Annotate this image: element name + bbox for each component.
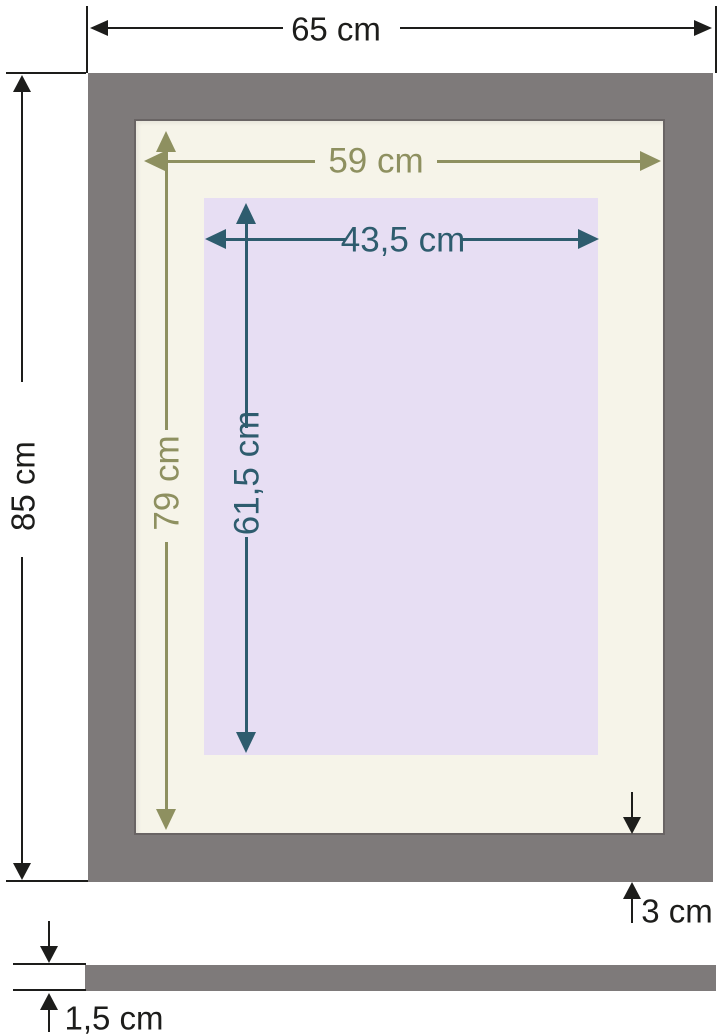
extension-line-top [13, 963, 86, 965]
dimension-line [21, 91, 23, 382]
arrow-shaft [631, 897, 633, 923]
dimension-line [106, 27, 283, 29]
extension-line-left [86, 6, 88, 73]
extension-line-bottom [13, 989, 86, 991]
dimension-line [400, 27, 698, 29]
arrowhead-down-icon [40, 946, 58, 963]
arrowhead-up-icon [623, 882, 641, 899]
arrow-shaft [48, 921, 50, 948]
frame-dimension-diagram: 65 cm 85 cm 59 cm 79 cm 43,5 cm [0, 0, 720, 1036]
profile-depth-label: 1,5 cm [64, 1002, 163, 1035]
arrowhead-right-icon [694, 20, 712, 36]
arrow-shaft [48, 1008, 50, 1032]
frame-face-label: 3 cm [641, 895, 713, 928]
outer-height-label: 85 cm [7, 441, 40, 531]
picture-opening [204, 198, 598, 755]
extension-line-bottom [6, 880, 88, 882]
arrowhead-up-icon [13, 75, 31, 92]
frame-profile-side-view [85, 965, 716, 991]
arrowhead-down-icon [13, 863, 31, 880]
dimension-line [21, 557, 23, 864]
extension-line-top [6, 72, 86, 74]
extension-line-right [715, 6, 717, 73]
arrowhead-up-icon [40, 993, 58, 1010]
outer-width-label: 65 cm [291, 13, 381, 46]
arrowhead-left-icon [90, 20, 108, 36]
